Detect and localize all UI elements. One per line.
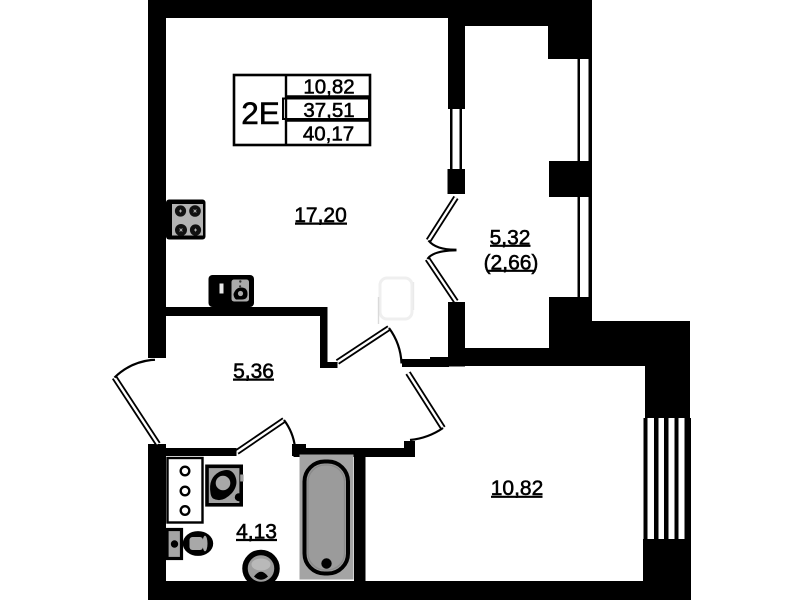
svg-text:40,17: 40,17 [303, 123, 354, 146]
svg-text:37,51: 37,51 [303, 99, 354, 122]
svg-text:2E: 2E [241, 95, 280, 131]
svg-text:10,82: 10,82 [303, 76, 354, 99]
